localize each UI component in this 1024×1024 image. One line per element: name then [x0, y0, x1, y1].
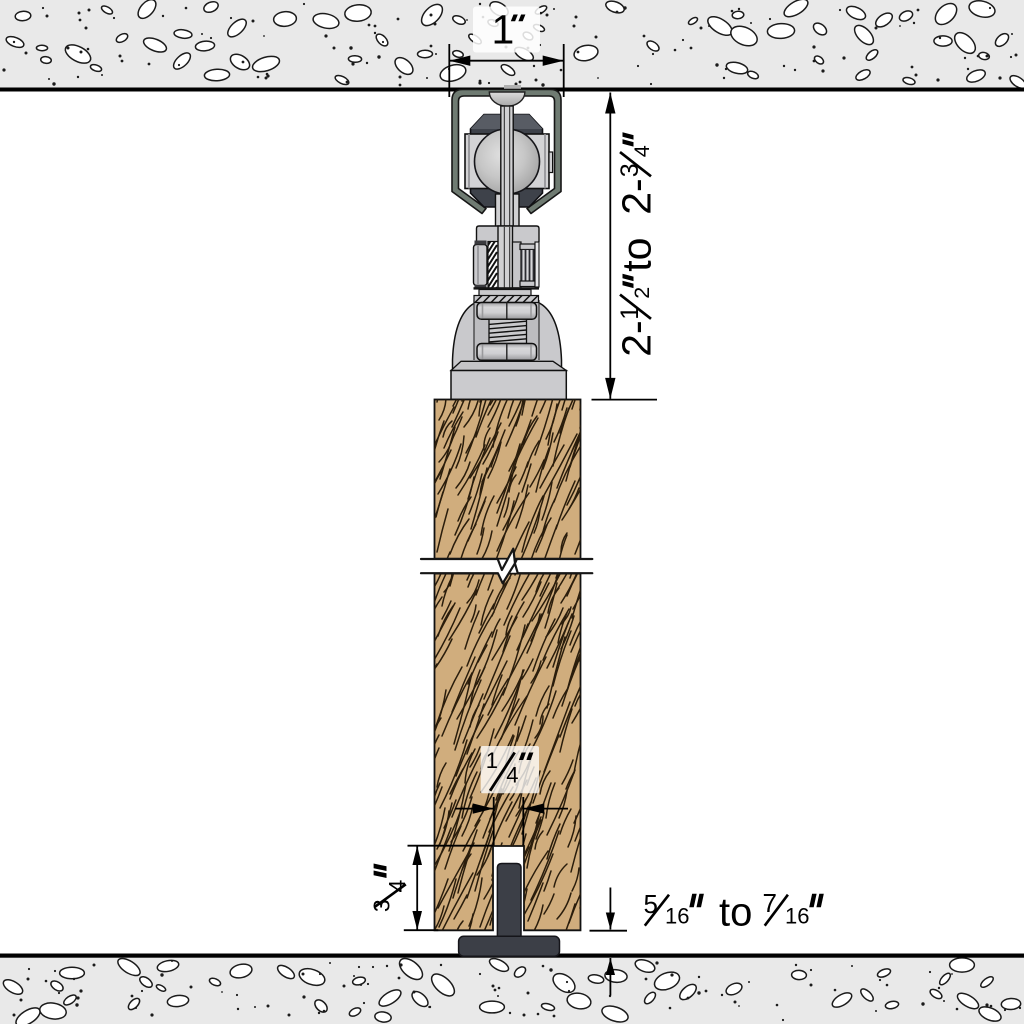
svg-text:16: 16: [665, 904, 689, 929]
svg-text:4: 4: [506, 763, 518, 788]
svg-text:4: 4: [630, 145, 654, 157]
svg-text:1: 1: [486, 748, 498, 773]
svg-text:2: 2: [630, 287, 654, 299]
svg-text:to: to: [719, 891, 752, 935]
svg-text:1: 1: [492, 7, 515, 53]
svg-text:1: 1: [616, 306, 644, 320]
svg-text:16: 16: [785, 904, 809, 929]
svg-text:to: to: [614, 238, 660, 272]
svg-text:2-: 2-: [614, 178, 660, 214]
svg-text:3: 3: [616, 163, 644, 177]
svg-text:5: 5: [644, 889, 658, 919]
svg-text:2-: 2-: [614, 320, 660, 356]
